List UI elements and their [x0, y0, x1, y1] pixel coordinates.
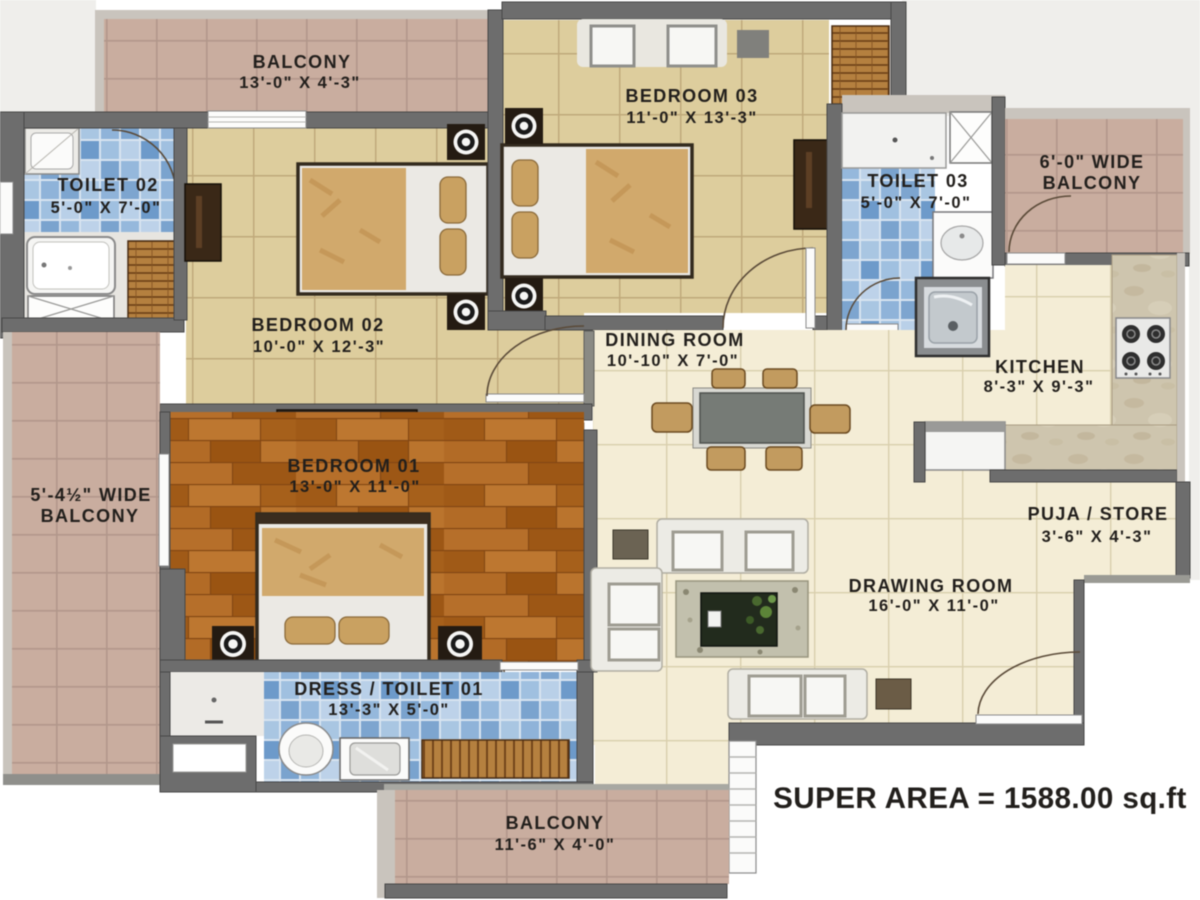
svg-text:5'-0" X 7'-0": 5'-0" X 7'-0" [861, 194, 972, 212]
svg-text:13'-0" X 11'-0": 13'-0" X 11'-0" [289, 478, 420, 496]
svg-text:5'-0" X 7'-0": 5'-0" X 7'-0" [51, 199, 162, 217]
svg-text:BALCONY: BALCONY [253, 52, 352, 72]
svg-text:13'-0" X 4'-3": 13'-0" X 4'-3" [239, 74, 361, 92]
svg-text:13'-3" X 5'-0": 13'-3" X 5'-0" [328, 701, 450, 719]
svg-text:BEDROOM 03: BEDROOM 03 [625, 86, 758, 106]
svg-text:10'-10" X 7'-0": 10'-10" X 7'-0" [607, 352, 739, 370]
svg-text:6'-0" WIDE: 6'-0" WIDE [1040, 152, 1145, 172]
svg-text:BALCONY: BALCONY [506, 813, 605, 833]
svg-text:5'-4½" WIDE: 5'-4½" WIDE [30, 485, 151, 505]
svg-text:BEDROOM 02: BEDROOM 02 [251, 315, 384, 335]
svg-text:DRAWING ROOM: DRAWING ROOM [849, 576, 1014, 596]
svg-text:11'-6" X 4'-0": 11'-6" X 4'-0" [495, 836, 616, 854]
svg-text:TOILET 02: TOILET 02 [57, 175, 158, 195]
svg-text:KITCHEN: KITCHEN [995, 357, 1085, 377]
svg-text:BALCONY: BALCONY [1043, 173, 1142, 193]
svg-text:8'-3" X 9'-3": 8'-3" X 9'-3" [984, 378, 1095, 396]
svg-text:DINING ROOM: DINING ROOM [605, 330, 744, 350]
svg-text:PUJA / STORE: PUJA / STORE [1028, 504, 1169, 524]
svg-text:BALCONY: BALCONY [41, 506, 140, 526]
svg-text:11'-0" X 13'-3": 11'-0" X 13'-3" [626, 109, 757, 127]
svg-text:SUPER AREA = 1588.00 sq.ft: SUPER AREA = 1588.00 sq.ft [773, 782, 1187, 815]
svg-text:10'-0" X 12'-3": 10'-0" X 12'-3" [253, 338, 385, 356]
svg-text:TOILET 03: TOILET 03 [867, 171, 968, 191]
svg-text:16'-0" X 11'-0": 16'-0" X 11'-0" [868, 597, 999, 615]
svg-text:DRESS / TOILET 01: DRESS / TOILET 01 [294, 679, 484, 699]
svg-text:3'-6" X 4'-3": 3'-6" X 4'-3" [1042, 528, 1153, 546]
svg-text:BEDROOM 01: BEDROOM 01 [287, 456, 420, 476]
